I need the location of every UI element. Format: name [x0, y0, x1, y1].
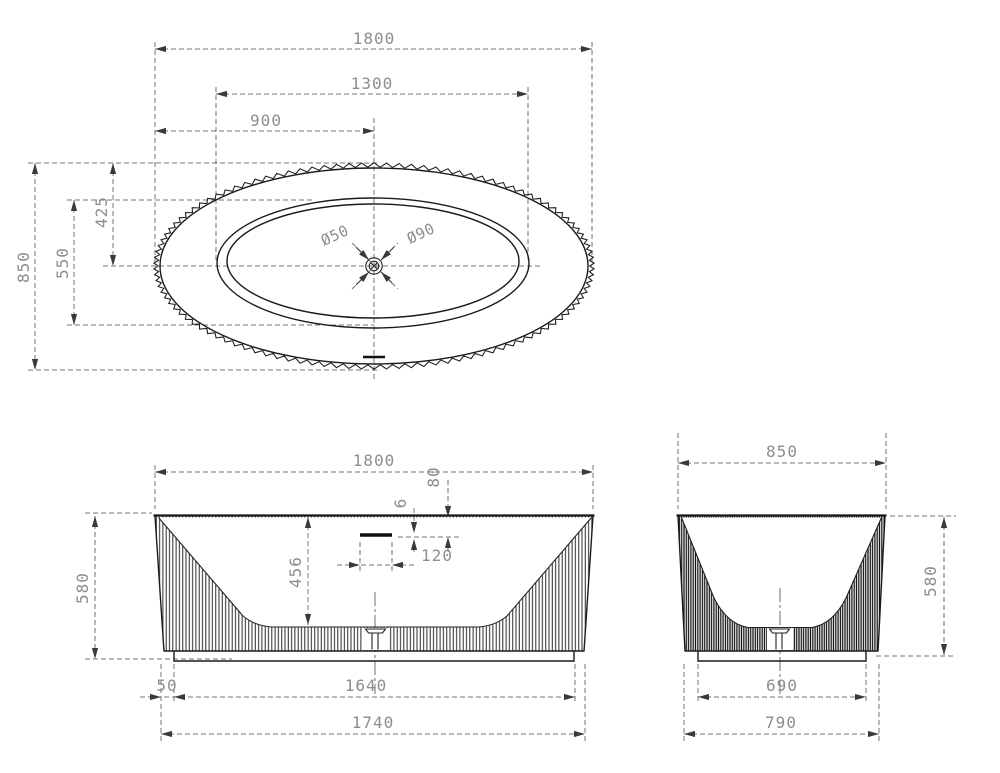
- dim-top-basin-length: 1300: [351, 74, 394, 93]
- dim-top-drain-offset-side: 425: [92, 196, 111, 228]
- front-drain: [363, 628, 388, 650]
- dim-side-bottom-width: 790: [765, 713, 797, 732]
- dim-front-length: 1800: [353, 451, 396, 470]
- top-view: 1800 1300 900 850 550 425 Ø50 Ø90: [14, 29, 594, 382]
- dim-top-width: 850: [14, 251, 33, 283]
- side-drain: [767, 628, 793, 650]
- dim-top-length: 1800: [353, 29, 396, 48]
- side-plinth: [698, 652, 866, 662]
- dim-base-length: 1640: [345, 676, 388, 695]
- dim-overflow-thickness: 6: [391, 498, 410, 509]
- dim-top-drain-offset: 900: [250, 111, 282, 130]
- dim-side-height: 580: [921, 565, 940, 597]
- dim-overflow-from-rim: 80: [424, 466, 443, 487]
- dim-front-depth: 456: [286, 556, 305, 588]
- dim-side-width: 850: [766, 442, 798, 461]
- dim-base-inset: 50: [156, 676, 177, 695]
- dim-overflow-diameter: Ø90: [404, 219, 438, 247]
- side-view: 850 580 690 790: [677, 433, 957, 741]
- dim-bottom-length: 1740: [352, 713, 395, 732]
- rim-inner-edge: [217, 198, 529, 328]
- dim-overflow-width: 120: [421, 546, 453, 565]
- bathtub-drawing: 1800 1300 900 850 550 425 Ø50 Ø90: [0, 0, 1000, 773]
- dim-top-basin-width: 550: [53, 247, 72, 279]
- technical-drawing-sheet: 1800 1300 900 850 550 425 Ø50 Ø90: [0, 0, 1000, 773]
- dim-drain-diameter: Ø50: [318, 221, 352, 249]
- dim-side-base-width: 690: [766, 676, 798, 695]
- dim-front-height: 580: [73, 572, 92, 604]
- front-plinth: [174, 652, 574, 662]
